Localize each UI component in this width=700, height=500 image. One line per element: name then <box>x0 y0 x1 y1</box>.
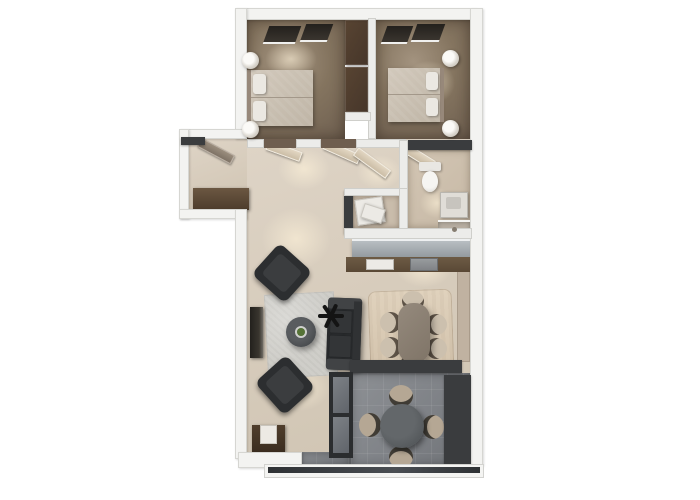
bathroom-dark-wall <box>404 140 472 150</box>
mattress-seam <box>251 97 313 98</box>
table-plant <box>295 326 307 338</box>
bed-headboard <box>247 70 251 126</box>
balcony-railing-glass <box>268 467 480 473</box>
balcony-chair <box>422 415 444 439</box>
cabinet-lamp <box>260 425 277 444</box>
doorway-floor <box>264 139 296 148</box>
washbasin <box>446 197 461 209</box>
pillow <box>253 74 266 94</box>
storage-right-wall <box>399 188 408 232</box>
glass-door-pane <box>333 377 349 413</box>
tv-console <box>250 307 263 358</box>
kitchen-sink <box>366 259 394 270</box>
toilet-tank <box>419 162 441 171</box>
doorway-floor <box>321 139 356 148</box>
balcony-divider-wall <box>350 360 462 373</box>
exterior-wall-top <box>235 8 477 20</box>
shower-drain <box>452 227 457 232</box>
kitchen-unit <box>352 239 470 259</box>
black-floor-plant <box>318 303 344 327</box>
sofa-cushion <box>328 334 352 358</box>
bedside-lamp <box>242 52 259 69</box>
balcony-privacy-screen <box>444 375 471 465</box>
kitchen-hob <box>410 258 438 271</box>
pillow <box>426 72 438 90</box>
glass-door-pane <box>333 417 349 453</box>
bed-headboard <box>440 68 444 122</box>
bedside-lamp <box>442 120 459 137</box>
pillow <box>253 101 266 121</box>
wardrobe <box>345 20 368 65</box>
wardrobe <box>345 67 368 112</box>
pillow <box>426 98 438 116</box>
entry-console <box>193 188 249 210</box>
bedside-lamp <box>442 50 459 67</box>
balcony-table <box>380 404 424 448</box>
exterior-wall-left-lower <box>235 209 247 459</box>
dining-table <box>398 303 430 363</box>
hall-wall-segment <box>296 139 321 148</box>
balcony-chair <box>359 413 381 437</box>
armchair-cushion <box>265 364 306 405</box>
wardrobe-wall-stub <box>345 112 371 121</box>
armchair-cushion <box>261 253 302 294</box>
hall-wall-segment <box>247 139 264 148</box>
window <box>263 26 302 44</box>
floor-plan-render <box>0 0 700 500</box>
kitchen-counter <box>346 257 470 272</box>
plant-leaves <box>297 328 305 336</box>
exterior-wall-left-upper <box>235 8 247 139</box>
bedside-lamp <box>242 121 259 138</box>
toilet-bowl <box>422 171 438 192</box>
mattress-seam <box>388 94 440 95</box>
entry-dark-wall-stub <box>181 137 205 145</box>
